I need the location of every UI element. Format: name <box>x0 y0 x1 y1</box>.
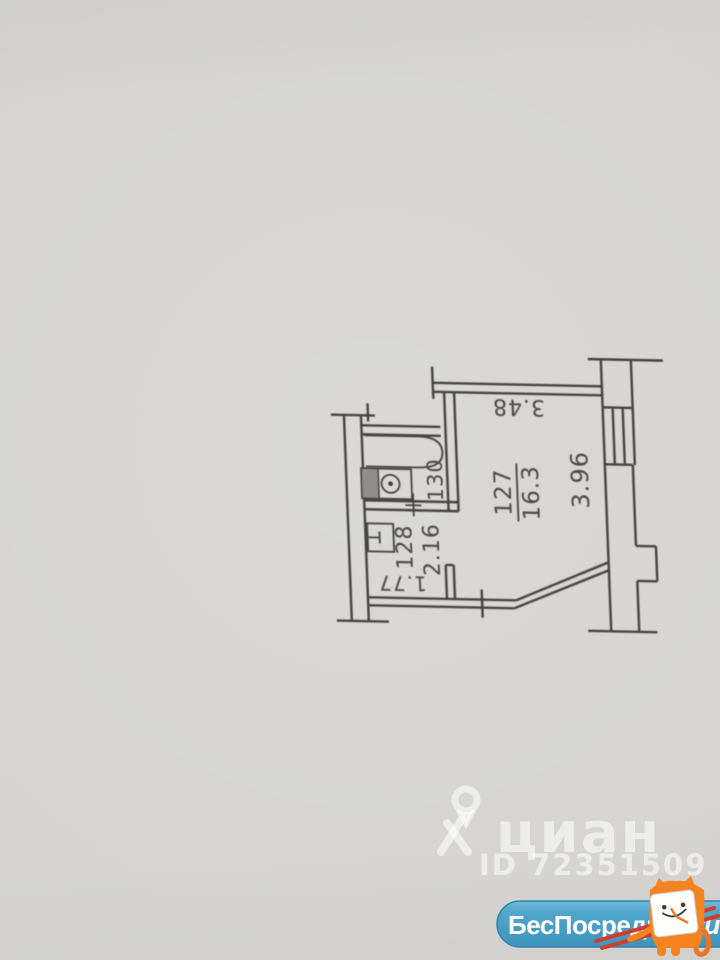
room-area-label: 16.3 <box>518 465 546 521</box>
room-number-label: 127 <box>490 468 518 515</box>
room-fraction-label: 127 16.3 <box>490 463 546 522</box>
dim-hall-label: 1.77 <box>378 570 427 595</box>
dim-top-label: 3.48 <box>492 393 546 419</box>
bathroom-number-label: 130 <box>422 458 449 502</box>
hall-area-label: 2.16 <box>419 523 446 576</box>
floorplan-photo: 3.48 127 16.3 3.96 130 128 2.16 1.77 циа… <box>0 0 720 960</box>
hall-number-label: 128 <box>392 524 419 569</box>
floorplan-canvas: 3.48 127 16.3 3.96 130 128 2.16 1.77 циа… <box>0 0 720 960</box>
watermark-id: ID 72351509 <box>479 848 707 882</box>
dim-right-label: 3.96 <box>565 451 595 509</box>
